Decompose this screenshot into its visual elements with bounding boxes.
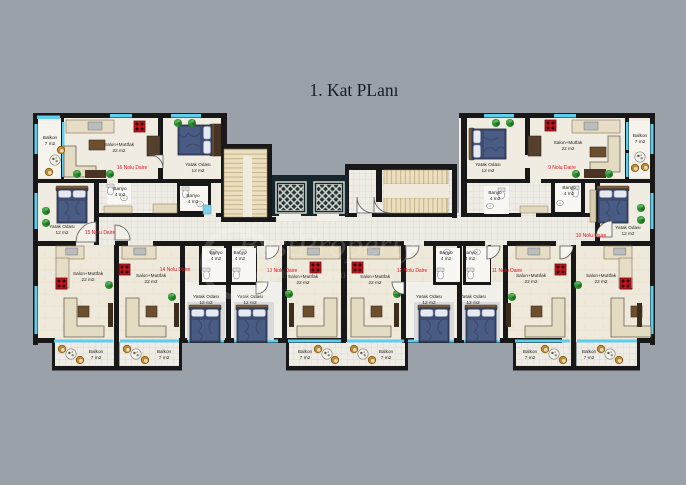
svg-text:BestProperty: BestProperty bbox=[238, 227, 417, 264]
svg-text:7 m2: 7 m2 bbox=[381, 355, 392, 360]
svg-text:14 Nolu Daire: 14 Nolu Daire bbox=[160, 267, 191, 273]
svg-text:22 m2: 22 m2 bbox=[594, 279, 607, 284]
svg-text:22 m2: 22 m2 bbox=[112, 148, 125, 153]
svg-text:недвижимость в алании: недвижимость в алании bbox=[240, 267, 363, 281]
svg-text:Yatak Odası: Yatak Odası bbox=[193, 294, 219, 300]
svg-text:7 m2: 7 m2 bbox=[584, 355, 595, 360]
svg-text:12 m2: 12 m2 bbox=[243, 300, 257, 306]
svg-text:15 Nolu Daire: 15 Nolu Daire bbox=[85, 230, 116, 236]
svg-text:11 Nolu Daire: 11 Nolu Daire bbox=[492, 268, 522, 274]
svg-text:22 m2: 22 m2 bbox=[368, 280, 381, 285]
svg-text:Salon+Muttfak: Salon+Muttfak bbox=[136, 273, 167, 278]
svg-text:Yatak Odası: Yatak Odası bbox=[615, 225, 640, 230]
svg-text:Balkon: Balkon bbox=[379, 349, 394, 354]
svg-text:4 m2: 4 m2 bbox=[441, 256, 452, 261]
svg-text:Banyo: Banyo bbox=[113, 186, 127, 191]
svg-text:Salon+Mutfak: Salon+Mutfak bbox=[554, 140, 583, 145]
svg-text:Balkon: Balkon bbox=[582, 349, 597, 354]
svg-text:Yatak Odası: Yatak Odası bbox=[49, 224, 74, 229]
svg-text:22 m2: 22 m2 bbox=[81, 277, 94, 282]
svg-text:Balkon: Balkon bbox=[157, 349, 172, 354]
svg-text:12 m2: 12 m2 bbox=[481, 168, 494, 173]
svg-text:22 m2: 22 m2 bbox=[561, 146, 574, 151]
svg-text:Yatak Odası: Yatak Odası bbox=[460, 294, 486, 300]
svg-text:Banyo: Banyo bbox=[488, 190, 502, 195]
svg-text:Yatak Odası: Yatak Odası bbox=[475, 162, 500, 167]
svg-text:Balkon: Balkon bbox=[89, 349, 104, 354]
svg-text:7 m2: 7 m2 bbox=[300, 355, 311, 360]
svg-text:12 m2: 12 m2 bbox=[191, 168, 204, 173]
svg-text:12 m2: 12 m2 bbox=[422, 300, 436, 306]
svg-text:Balkon: Balkon bbox=[523, 349, 538, 354]
svg-text:12 m2: 12 m2 bbox=[199, 300, 213, 306]
svg-text:7 m2: 7 m2 bbox=[159, 355, 170, 360]
svg-text:4 m2: 4 m2 bbox=[564, 191, 575, 196]
svg-text:22 m2: 22 m2 bbox=[144, 279, 157, 284]
svg-text:12 m2: 12 m2 bbox=[621, 231, 634, 236]
svg-text:Balkon: Balkon bbox=[298, 349, 313, 354]
svg-text:7 m2: 7 m2 bbox=[45, 141, 56, 146]
svg-text:4 m2: 4 m2 bbox=[188, 199, 199, 204]
svg-text:Banyo: Banyo bbox=[186, 193, 200, 198]
svg-text:Yatak Odası: Yatak Odası bbox=[185, 162, 210, 167]
svg-text:4 m2: 4 m2 bbox=[490, 196, 501, 201]
svg-text:Balkon: Balkon bbox=[633, 133, 648, 138]
svg-text:Salon+Muttfak: Salon+Muttfak bbox=[360, 274, 391, 279]
svg-text:Yatak Odası: Yatak Odası bbox=[416, 294, 442, 300]
svg-text:Banyo: Banyo bbox=[562, 185, 576, 190]
svg-text:16 Nolu Daire: 16 Nolu Daire bbox=[117, 165, 148, 171]
svg-text:7 m2: 7 m2 bbox=[635, 139, 646, 144]
svg-text:Banyo: Banyo bbox=[209, 250, 222, 255]
svg-text:Salon+Muttfak: Salon+Muttfak bbox=[104, 142, 135, 147]
svg-text:4 m2: 4 m2 bbox=[465, 256, 476, 261]
svg-text:4 m2: 4 m2 bbox=[115, 192, 126, 197]
svg-text:12 Nolu Daire: 12 Nolu Daire bbox=[397, 268, 428, 274]
svg-text:9 Nolu Daire: 9 Nolu Daire bbox=[548, 165, 576, 171]
svg-text:12 m2: 12 m2 bbox=[55, 230, 68, 235]
svg-text:Banyo: Banyo bbox=[439, 250, 452, 255]
svg-text:Banyo: Banyo bbox=[463, 250, 476, 255]
svg-text:4 m2: 4 m2 bbox=[211, 256, 222, 261]
svg-text:Salon+Muttfak: Salon+Muttfak bbox=[586, 273, 617, 278]
svg-text:22 m2: 22 m2 bbox=[524, 279, 537, 284]
svg-text:10 Nolu Daire: 10 Nolu Daire bbox=[576, 233, 607, 239]
svg-text:1. Kat PLanı: 1. Kat PLanı bbox=[310, 80, 399, 100]
svg-text:Balkon: Balkon bbox=[43, 135, 58, 140]
svg-text:7 m2: 7 m2 bbox=[525, 355, 536, 360]
svg-text:Salon+Muttfak: Salon+Muttfak bbox=[73, 271, 104, 276]
svg-text:12 m2: 12 m2 bbox=[466, 300, 480, 306]
svg-text:7 m2: 7 m2 bbox=[91, 355, 102, 360]
